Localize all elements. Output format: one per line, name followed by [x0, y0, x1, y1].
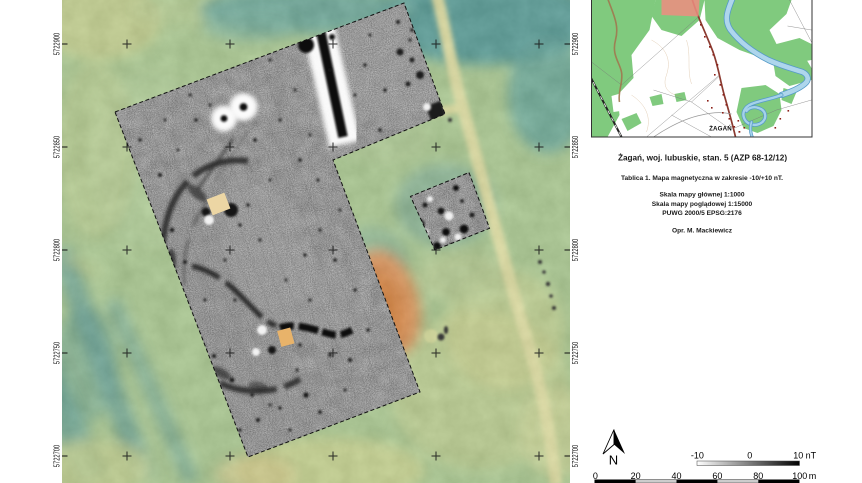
- svg-text:ŻAGAŃ: ŻAGAŃ: [709, 125, 732, 133]
- svg-text:5722750: 5722750: [570, 342, 581, 364]
- svg-text:Żagań, woj. lubuskie, stan. 5: Żagań, woj. lubuskie, stan. 5 (AZP 68-12…: [618, 153, 787, 163]
- svg-text:5722700: 5722700: [51, 445, 62, 467]
- svg-text:40: 40: [671, 471, 681, 481]
- svg-text:20: 20: [631, 471, 641, 481]
- svg-text:nT: nT: [806, 451, 817, 461]
- svg-text:N: N: [609, 453, 618, 468]
- svg-text:5722900: 5722900: [570, 33, 581, 55]
- svg-text:5722800: 5722800: [51, 239, 62, 261]
- svg-text:5722900: 5722900: [51, 33, 62, 55]
- svg-text:5722750: 5722750: [51, 342, 62, 364]
- svg-text:5722850: 5722850: [51, 136, 62, 158]
- svg-text:10: 10: [793, 451, 803, 461]
- svg-text:5722800: 5722800: [570, 239, 581, 261]
- svg-text:80: 80: [753, 471, 763, 481]
- svg-text:0: 0: [593, 471, 598, 481]
- svg-text:100: 100: [792, 471, 807, 481]
- svg-text:5722850: 5722850: [570, 136, 581, 158]
- svg-text:m: m: [809, 471, 817, 481]
- svg-text:-10: -10: [691, 451, 704, 461]
- svg-text:0: 0: [747, 451, 752, 461]
- svg-text:60: 60: [712, 471, 722, 481]
- svg-text:PUWG 2000/5 EPSG:2176: PUWG 2000/5 EPSG:2176: [662, 210, 742, 217]
- svg-text:Skala mapy głównej 1:1000: Skala mapy głównej 1:1000: [659, 192, 744, 199]
- svg-text:Skala mapy poglądowej 1:15000: Skala mapy poglądowej 1:15000: [652, 201, 753, 208]
- svg-text:5722700: 5722700: [570, 445, 581, 467]
- svg-text:Opr. M. Mackiewicz: Opr. M. Mackiewicz: [672, 227, 733, 234]
- svg-text:Tablica 1. Mapa magnetyczna w: Tablica 1. Mapa magnetyczna w zakresie -…: [621, 175, 783, 182]
